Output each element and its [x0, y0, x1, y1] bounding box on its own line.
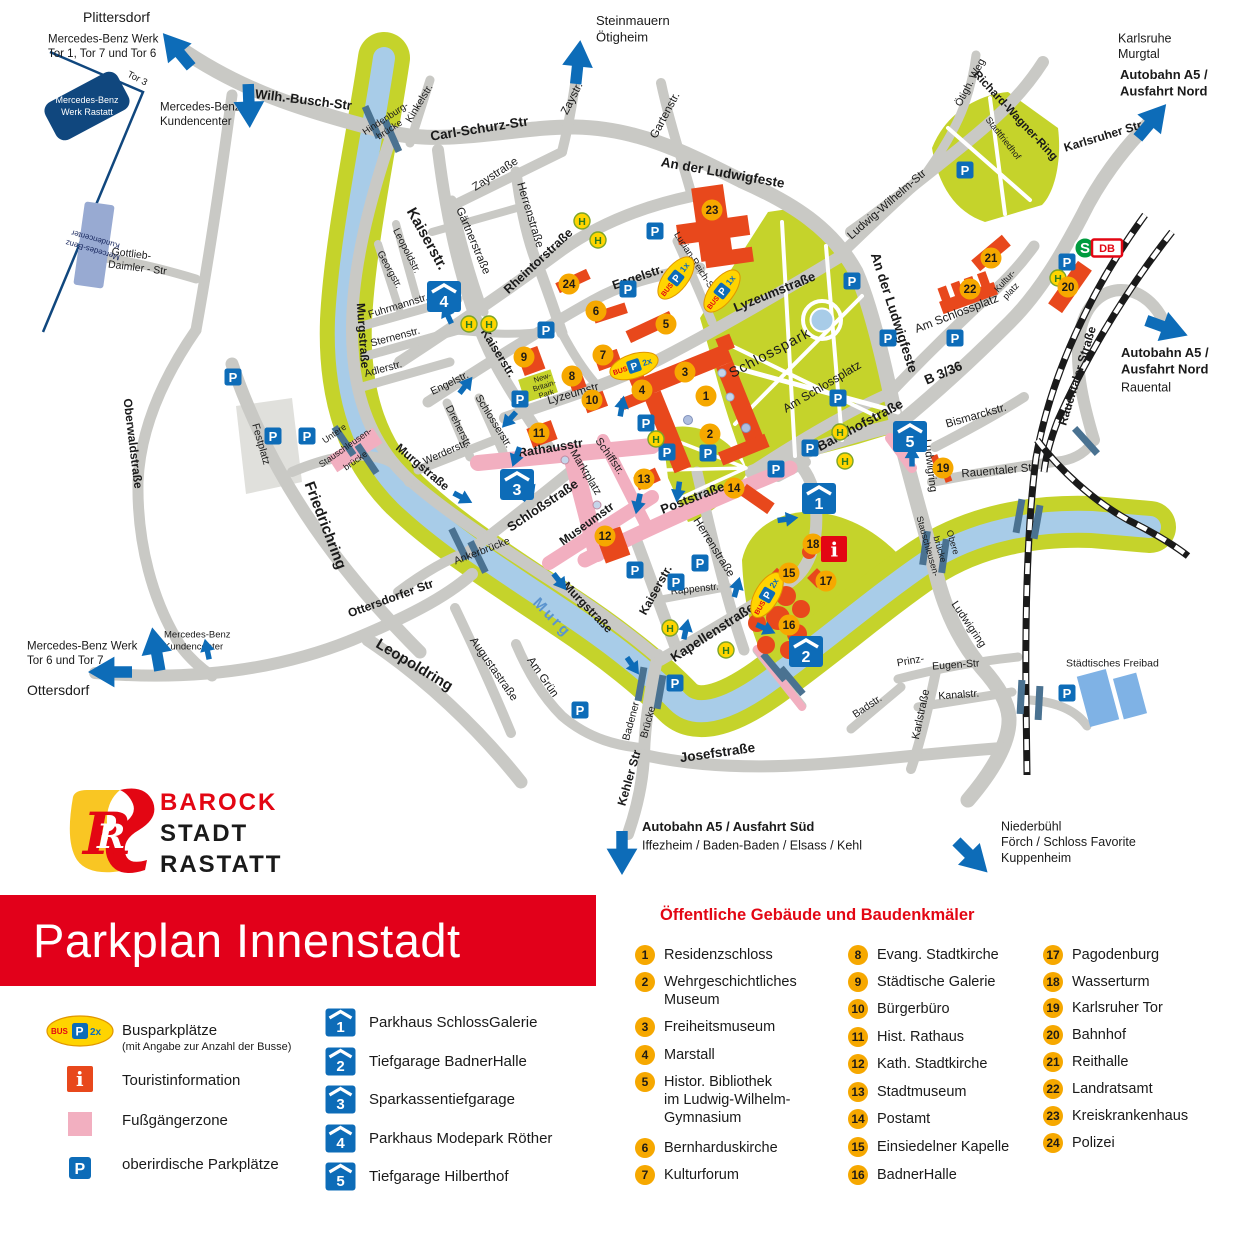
garage-icon-2: 2 — [789, 636, 823, 667]
svg-text:P: P — [651, 224, 660, 239]
svg-text:P: P — [542, 323, 551, 338]
svg-text:i: i — [76, 1067, 84, 1091]
garage-icon-5: 5 — [893, 421, 927, 452]
svg-text:P: P — [806, 441, 815, 456]
parking-icon: P — [957, 162, 974, 179]
map-marker-12: Kath. Stadtkirche12 — [595, 526, 616, 547]
garage-icon-1: 1 — [802, 483, 836, 514]
parking-icon: P — [692, 555, 709, 572]
building-legend-item-1: 1 Residenzschloss — [635, 945, 773, 965]
building-number-badge: 2 — [635, 972, 655, 992]
map-marker-9: Städtische Galerie9 — [514, 347, 535, 368]
svg-text:P: P — [75, 1161, 86, 1178]
building-legend-item-8: 8 Evang. Stadtkirche — [848, 945, 999, 965]
svg-text:P: P — [1063, 255, 1072, 270]
building-number-badge: 13 — [848, 1082, 868, 1102]
parking-icon: P — [225, 369, 242, 386]
building-legend-item-23: 23 Kreiskrankenhaus — [1043, 1106, 1188, 1126]
building-number-badge: 3 — [635, 1017, 655, 1037]
bus-stop-icon: H — [837, 453, 853, 469]
tourist-info-label: Touristinformation — [122, 1072, 240, 1089]
building-number-badge: 23 — [1043, 1106, 1063, 1126]
svg-text:12: 12 — [599, 531, 612, 543]
schlosspark-lake — [811, 309, 834, 332]
building-label: Freiheitsmuseum — [664, 1017, 775, 1036]
svg-text:H: H — [578, 216, 586, 228]
street-label: Rauentaler Str. — [961, 462, 1038, 481]
building-label: Hist. Rathaus — [877, 1027, 964, 1046]
map-marker-16: BadnerHalle16 — [779, 615, 800, 636]
svg-text:P: P — [76, 1025, 84, 1039]
garage-legend-label: Parkhaus Modepark Röther — [369, 1130, 552, 1147]
bus-stop-icon: H — [461, 316, 477, 332]
svg-text:9: 9 — [521, 352, 527, 364]
svg-text:5: 5 — [906, 434, 915, 451]
garage-legend-item-1: 1 Parkhaus SchlossGalerie — [325, 1008, 537, 1037]
svg-text:20: 20 — [1062, 282, 1075, 294]
destination-label: KarlsruheMurgtal — [1118, 32, 1172, 62]
parking-icon: P — [1059, 685, 1076, 702]
building-legend-item-20: 20 Bahnhof — [1043, 1025, 1126, 1045]
svg-text:13: 13 — [638, 474, 651, 486]
svg-text:H: H — [722, 645, 730, 657]
building-legend-item-5: 5 Histor. Bibliothek im Ludwig-Wilhelm- … — [635, 1072, 791, 1127]
building-label: Kreiskrankenhaus — [1072, 1106, 1188, 1125]
svg-text:P: P — [848, 274, 857, 289]
city-map: Wilh.-Busch-StrCarl-Schurz-StrZaystr.Zay… — [0, 0, 1240, 892]
building-legend-item-4: 4 Marstall — [635, 1045, 715, 1065]
svg-text:BUS: BUS — [51, 1027, 69, 1036]
map-marker-15: Einsiedelner Kapelle15 — [779, 563, 800, 584]
parking-icon: P — [265, 428, 282, 445]
building-label: Bahnhof — [1072, 1025, 1126, 1044]
map-marker-18: Wasserturm18 — [803, 534, 824, 555]
svg-text:3: 3 — [336, 1096, 344, 1113]
svg-text:2: 2 — [336, 1058, 344, 1075]
building-label: Kulturforum — [664, 1165, 739, 1184]
logo-line-stadt: STADT — [160, 820, 248, 847]
destination-label: Städtisches Freibad — [1066, 658, 1159, 670]
svg-text:i: i — [831, 538, 839, 562]
svg-text:5: 5 — [663, 319, 670, 331]
svg-text:8: 8 — [569, 371, 576, 383]
svg-text:P: P — [696, 556, 705, 571]
destination-label: SteinmauernÖtigheim — [596, 13, 670, 44]
svg-text:3: 3 — [513, 482, 522, 499]
parking-icon: P — [947, 330, 964, 347]
parking-icon: P — [512, 391, 529, 408]
parking-icon: P — [668, 574, 685, 591]
bus-stop-icon: H — [718, 642, 734, 658]
building-number-badge: 24 — [1043, 1133, 1063, 1153]
bus-stop-icon: H — [590, 232, 606, 248]
map-marker-4: Marstall4 — [632, 380, 653, 401]
garage-legend-item-2: 2 Tiefgarage BadnerHalle — [325, 1047, 527, 1076]
destination-label: Autobahn A5 /Ausfahrt Nord — [1121, 345, 1209, 376]
svg-text:DB: DB — [1099, 243, 1115, 255]
parking-icon: P — [1059, 254, 1076, 271]
svg-text:11: 11 — [533, 428, 546, 440]
destination-label: Ottersdorf — [27, 682, 89, 698]
parking-icon: P — [830, 390, 847, 407]
building-number-badge: 15 — [848, 1137, 868, 1157]
building-legend-item-15: 15 Einsiedelner Kapelle — [848, 1137, 1009, 1157]
building-number-badge: 21 — [1043, 1052, 1063, 1072]
svg-text:4: 4 — [336, 1135, 345, 1152]
svg-text:P: P — [672, 575, 681, 590]
svg-text:H: H — [485, 319, 493, 331]
legend-icons: BUS P 2x i P — [40, 1005, 120, 1195]
map-marker-3: Freiheitsmuseum3 — [675, 362, 696, 383]
logo-line-barock: BAROCK — [160, 789, 277, 816]
parking-icon: P — [627, 562, 644, 579]
svg-text:H: H — [594, 235, 602, 247]
svg-text:P: P — [229, 370, 238, 385]
svg-text:24: 24 — [563, 279, 576, 291]
svg-text:P: P — [951, 331, 960, 346]
building-label: BadnerHalle — [877, 1165, 957, 1184]
bus-stop-icon: H — [481, 316, 497, 332]
building-legend-item-3: 3 Freiheitsmuseum — [635, 1017, 775, 1037]
barock-stadt-rastatt-logo: R R BAROCK STADT RASTATT — [35, 782, 295, 882]
street-label: Zaystr. — [559, 81, 585, 117]
svg-text:P: P — [671, 676, 680, 691]
garage-icon-5: 5 — [325, 1162, 356, 1191]
building-legend-item-11: 11 Hist. Rathaus — [848, 1027, 964, 1047]
building-number-badge: 5 — [635, 1072, 655, 1092]
bus-stop-icon: H — [648, 431, 664, 447]
building-label: Bürgerbüro — [877, 999, 950, 1018]
page-title: Parkplan Innenstadt — [0, 913, 461, 968]
building-legend-item-18: 18 Wasserturm — [1043, 972, 1150, 992]
map-marker-20: Bahnhof20 — [1058, 277, 1079, 298]
building-legend-item-9: 9 Städtische Galerie — [848, 972, 995, 992]
tourist-info-icon: i — [821, 536, 847, 562]
building-number-badge: 19 — [1043, 998, 1063, 1018]
street-label: An der Ludwigfeste — [660, 154, 786, 191]
surface-parking-label: oberirdische Parkplätze — [122, 1156, 279, 1173]
building-number-badge: 18 — [1043, 972, 1063, 992]
svg-text:H: H — [841, 456, 849, 468]
building-legend-item-12: 12 Kath. Stadtkirche — [848, 1054, 987, 1074]
svg-text:2: 2 — [707, 429, 713, 441]
parking-icon: P — [880, 330, 897, 347]
building-number-badge: 20 — [1043, 1025, 1063, 1045]
svg-text:H: H — [836, 427, 844, 439]
building-number-badge: 4 — [635, 1045, 655, 1065]
direction-arrow — [560, 39, 595, 86]
destination-label: NiederbühlFörch / Schloss FavoriteKuppen… — [1001, 820, 1136, 865]
bus-stop-icon: H — [662, 620, 678, 636]
logo-r-white: R — [96, 817, 125, 857]
svg-text:P: P — [884, 331, 893, 346]
svg-text:1: 1 — [815, 496, 824, 513]
destination-label: Mercedes-Benz WerkTor 1, Tor 7 und Tor 6 — [48, 34, 159, 60]
svg-text:5: 5 — [336, 1173, 344, 1190]
garage-legend-label: Parkhaus SchlossGalerie — [369, 1014, 537, 1031]
map-marker-21: Reithalle21 — [981, 248, 1002, 269]
street-label: Brücke — [638, 705, 658, 740]
svg-text:S: S — [1080, 240, 1090, 257]
building-legend-item-22: 22 Landratsamt — [1043, 1079, 1153, 1099]
svg-text:2: 2 — [802, 649, 811, 666]
garage-icon-3: 3 — [500, 469, 534, 500]
garage-legend-item-5: 5 Tiefgarage Hilberthof — [325, 1162, 509, 1191]
svg-text:P: P — [1063, 686, 1072, 701]
building-label: Karlsruher Tor — [1072, 998, 1163, 1017]
svg-text:23: 23 — [706, 205, 719, 217]
map-marker-11: Hist. Rathaus11 — [529, 423, 550, 444]
svg-text:P: P — [303, 429, 312, 444]
parking-icon: P — [667, 675, 684, 692]
title-banner: Parkplan Innenstadt — [0, 895, 596, 986]
building-label: Wehrgeschichtliches Museum — [664, 972, 797, 1009]
street-label: Engelstr. — [610, 262, 664, 292]
map-marker-13: Stadtmuseum13 — [634, 469, 655, 490]
building-legend-item-17: 17 Pagodenburg — [1043, 945, 1159, 965]
parking-icon: P — [299, 428, 316, 445]
building-number-badge: 14 — [848, 1109, 868, 1129]
svg-text:21: 21 — [985, 253, 998, 265]
svg-text:7: 7 — [600, 350, 606, 362]
garage-icon-1: 1 — [325, 1008, 356, 1037]
parking-icon: P — [768, 461, 785, 478]
destination-label: Iffezheim / Baden-Baden / Elsass / Kehl — [642, 839, 862, 853]
bus-parking-sublabel: (mit Angabe zur Anzahl der Busse) — [122, 1041, 291, 1053]
map-marker-7: Kulturforum7 — [593, 345, 614, 366]
direction-arrow — [1141, 306, 1193, 350]
building-label: Polizei — [1072, 1133, 1115, 1152]
svg-text:P: P — [642, 416, 651, 431]
building-legend-item-6: 6 Bernharduskirche — [635, 1138, 778, 1158]
parking-icon: P — [647, 223, 664, 240]
svg-text:P: P — [704, 446, 713, 461]
building-label: Reithalle — [1072, 1052, 1128, 1071]
map-marker-24: Polizei24 — [559, 274, 580, 295]
building-legend-item-13: 13 Stadtmuseum — [848, 1082, 966, 1102]
garage-icon-2: 2 — [325, 1047, 356, 1076]
parking-icon: P — [620, 281, 637, 298]
svg-text:H: H — [666, 623, 674, 635]
svg-text:P: P — [961, 163, 970, 178]
tourist-info-icon: i — [67, 1066, 93, 1092]
buildings-legend-header: Öffentliche Gebäude und Baudenkmäler — [660, 906, 974, 925]
building-label: Marstall — [664, 1045, 715, 1064]
garage-legend-label: Tiefgarage Hilberthof — [369, 1168, 509, 1185]
svg-text:3: 3 — [682, 367, 688, 379]
building-number-badge: 11 — [848, 1027, 868, 1047]
logo-line-rastatt: RASTATT — [160, 851, 282, 878]
building-number-badge: 17 — [1043, 945, 1063, 965]
destination-label: Autobahn A5 / Ausfahrt Süd — [642, 819, 814, 834]
surface-parking-icon: P — [69, 1157, 91, 1179]
mercedes-box: Mercedes-BenzKundencenter — [59, 199, 127, 290]
pedestrian-zone-swatch — [68, 1112, 92, 1136]
destination-label: Mercedes-BenzKundencenter — [164, 630, 231, 653]
building-number-badge: 1 — [635, 945, 655, 965]
building-number-badge: 9 — [848, 972, 868, 992]
building-number-badge: 6 — [635, 1138, 655, 1158]
street-label: Eugen-Str — [932, 657, 980, 672]
destination-label: Plittersdorf — [83, 9, 150, 25]
page: { "banner": { "title": "Parkplan Innenst… — [0, 0, 1240, 1240]
svg-text:18: 18 — [807, 539, 820, 551]
parking-icon: P — [700, 445, 717, 462]
garage-icon-4: 4 — [427, 281, 461, 312]
map-marker-23: Kreiskrankenhaus23 — [702, 200, 723, 221]
mercedes-box: Mercedes-BenzWerk Rastatt — [39, 65, 135, 147]
building-legend-item-14: 14 Postamt — [848, 1109, 930, 1129]
svg-text:14: 14 — [728, 483, 741, 495]
svg-text:15: 15 — [783, 568, 796, 580]
building-legend-item-2: 2 Wehrgeschichtliches Museum — [635, 972, 797, 1009]
building-label: Landratsamt — [1072, 1079, 1153, 1098]
building-number-badge: 22 — [1043, 1079, 1063, 1099]
direction-arrow — [946, 831, 999, 884]
map-marker-19: Karlsruher Tor19 — [933, 458, 954, 479]
mercedes-box-text: Mercedes-Benz — [55, 95, 119, 105]
building-label: Bernharduskirche — [664, 1138, 778, 1157]
building-label: Stadtmuseum — [877, 1082, 966, 1101]
building-label: Wasserturm — [1072, 972, 1150, 991]
svg-text:2x: 2x — [90, 1027, 102, 1038]
building-number-badge: 10 — [848, 999, 868, 1019]
building-legend-item-24: 24 Polizei — [1043, 1133, 1115, 1153]
map-marker-6: Bernharduskirche6 — [586, 301, 607, 322]
parking-icon: P — [638, 415, 655, 432]
building-legend-item-7: 7 Kulturforum — [635, 1165, 739, 1185]
map-marker-2: Wehrgeschichtliches Museum2 — [700, 424, 721, 445]
garage-legend-label: Tiefgarage BadnerHalle — [369, 1053, 527, 1070]
parking-icon: P — [572, 702, 589, 719]
svg-text:P: P — [624, 282, 633, 297]
svg-text:19: 19 — [937, 463, 950, 475]
svg-text:16: 16 — [783, 620, 796, 632]
parking-icon: P — [538, 322, 555, 339]
map-marker-14: Postamt14 — [724, 478, 745, 499]
building-number-badge: 7 — [635, 1165, 655, 1185]
svg-text:22: 22 — [964, 284, 977, 296]
building-legend-item-10: 10 Bürgerbüro — [848, 999, 950, 1019]
street-label: Ludwig-Wilhelm-Str — [845, 167, 928, 242]
bus-parking-icon: BUS P 2x — [47, 1016, 113, 1046]
mercedes-box-text: Werk Rastatt — [61, 107, 113, 117]
pedestrian-zone-label: Fußgängerzone — [122, 1112, 228, 1129]
svg-text:6: 6 — [593, 306, 599, 318]
svg-text:P: P — [631, 563, 640, 578]
garage-icon-4: 4 — [325, 1124, 356, 1153]
svg-text:P: P — [663, 445, 672, 460]
map-marker-8: Evang. Stadtkirche8 — [562, 366, 583, 387]
parking-icon: P — [844, 273, 861, 290]
bus-stop-icon: H — [574, 213, 590, 229]
garage-legend-item-3: 3 Sparkassentiefgarage — [325, 1085, 515, 1114]
map-marker-10: Bürgerbüro10 — [582, 390, 603, 411]
svg-text:P: P — [834, 391, 843, 406]
svg-text:17: 17 — [820, 576, 833, 588]
map-marker-5: Histor. Bibliothek im Ludwig-Wilhelm- Gy… — [656, 314, 677, 335]
garage-legend-item-4: 4 Parkhaus Modepark Röther — [325, 1124, 552, 1153]
building-legend-item-16: 16 BadnerHalle — [848, 1165, 957, 1185]
map-marker-22: Landratsamt22 — [960, 279, 981, 300]
bus-parking-label: Busparkplätze — [122, 1022, 217, 1039]
svg-text:P: P — [576, 703, 585, 718]
svg-text:10: 10 — [586, 395, 599, 407]
building-label: Postamt — [877, 1109, 930, 1128]
building-label: Histor. Bibliothek im Ludwig-Wilhelm- Gy… — [664, 1072, 791, 1127]
destination-label: Rauental — [1121, 381, 1171, 395]
building-label: Residenzschloss — [664, 945, 773, 964]
svg-text:4: 4 — [639, 385, 646, 397]
building-legend-item-19: 19 Karlsruher Tor — [1043, 998, 1163, 1018]
destination-label: Mercedes-Benz WerkTor 6 und Tor 7 — [27, 641, 138, 667]
building-legend-item-21: 21 Reithalle — [1043, 1052, 1128, 1072]
garage-legend-label: Sparkassentiefgarage — [369, 1091, 515, 1108]
svg-text:P: P — [516, 392, 525, 407]
svg-text:4: 4 — [440, 294, 449, 311]
svg-text:P: P — [772, 462, 781, 477]
building-label: Kath. Stadtkirche — [877, 1054, 987, 1073]
map-marker-1: Residenzschloss1 — [696, 386, 717, 407]
building-number-badge: 16 — [848, 1165, 868, 1185]
destination-label: Autobahn A5 /Ausfahrt Nord — [1120, 67, 1208, 98]
building-number-badge: 8 — [848, 945, 868, 965]
freibad-buildings — [1077, 669, 1147, 727]
building-label: Städtische Galerie — [877, 972, 995, 991]
building-number-badge: 12 — [848, 1054, 868, 1074]
building-label: Evang. Stadtkirche — [877, 945, 999, 964]
db-icon: DB — [1092, 240, 1122, 257]
garage-icon-3: 3 — [325, 1085, 356, 1114]
svg-text:H: H — [652, 434, 660, 446]
svg-text:1: 1 — [336, 1019, 344, 1036]
building-label: Einsiedelner Kapelle — [877, 1137, 1009, 1156]
svg-text:H: H — [465, 319, 473, 331]
parking-icon: P — [802, 440, 819, 457]
map-marker-17: Pagodenburg17 — [816, 571, 837, 592]
street-label: Prinz- — [896, 653, 926, 670]
bus-stop-icon: H — [832, 424, 848, 440]
building-label: Pagodenburg — [1072, 945, 1159, 964]
svg-text:1: 1 — [703, 391, 710, 403]
svg-text:P: P — [269, 429, 278, 444]
